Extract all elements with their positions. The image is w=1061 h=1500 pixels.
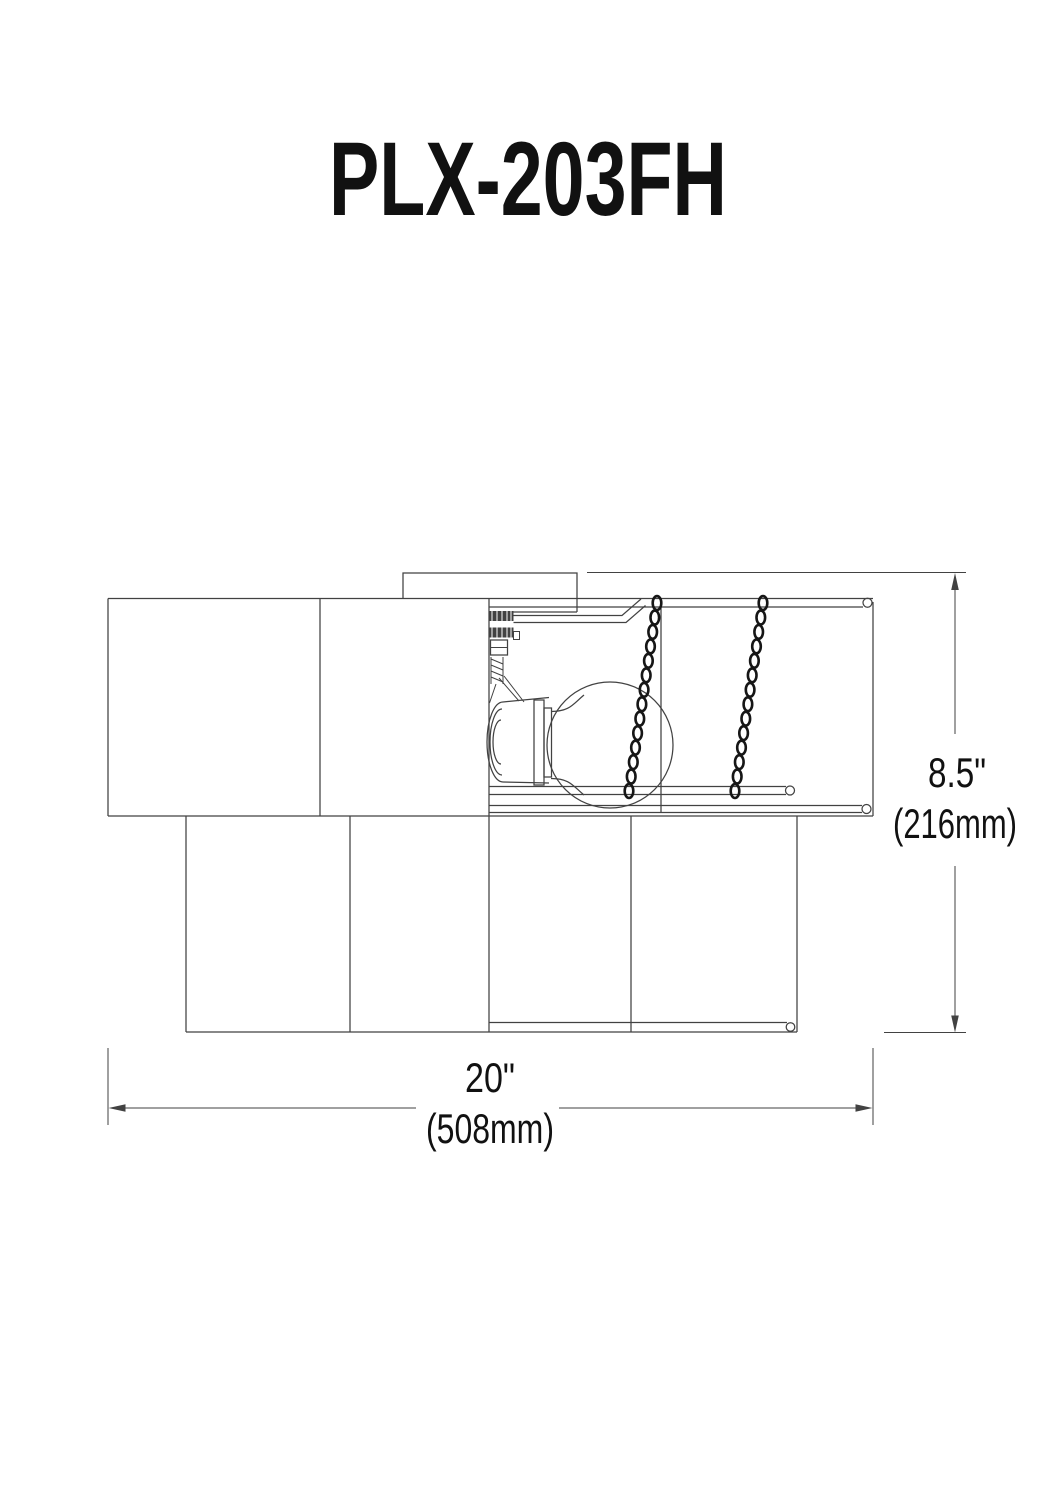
lamp-socket (487, 698, 552, 786)
chain-right (731, 596, 768, 798)
page-title: PLX-203FH (329, 121, 727, 238)
arrow-right-icon (856, 1104, 873, 1112)
chain-left (625, 596, 662, 798)
mounting-hardware (489, 599, 646, 703)
height-inches-label: 8.5" (928, 749, 986, 796)
dimension-width: 20" (508mm) (108, 1048, 873, 1152)
spec-sheet-page: { "title": { "text": "PLX-203FH" }, "dim… (0, 0, 1061, 1500)
technical-drawing: PLX-203FH (0, 0, 1061, 1500)
width-mm-label: (508mm) (426, 1105, 554, 1152)
arrow-down-icon (951, 1016, 959, 1033)
canopy (403, 573, 577, 612)
shade-lower-drum (186, 816, 797, 1032)
light-bulb (547, 682, 673, 808)
arrow-left-icon (109, 1104, 126, 1112)
width-inches-label: 20" (465, 1054, 515, 1101)
height-mm-label: (216mm) (893, 800, 1017, 847)
dimension-height: 8.5" (216mm) (587, 573, 1017, 1033)
arrow-up-icon (951, 573, 959, 590)
